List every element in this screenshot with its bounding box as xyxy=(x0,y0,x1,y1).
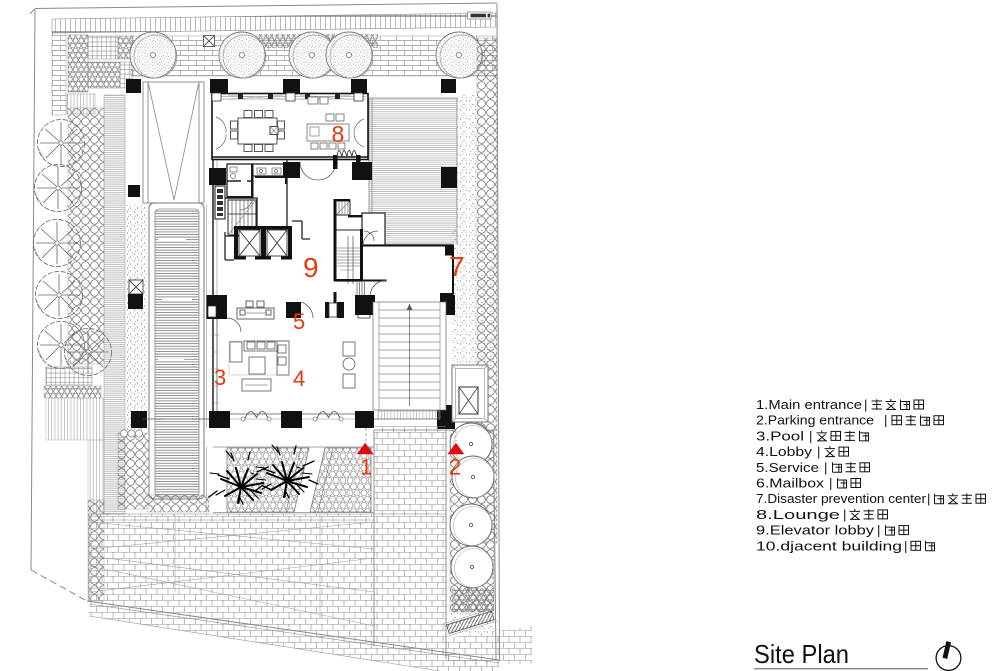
svg-text:8.Lounge: 8.Lounge xyxy=(756,507,840,522)
svg-text:2: 2 xyxy=(449,455,461,480)
svg-text:|: | xyxy=(904,538,907,553)
svg-text:1.Main entrance: 1.Main entrance xyxy=(756,397,862,412)
svg-text:4.Lobby: 4.Lobby xyxy=(756,444,812,459)
svg-text:10.djacent building: 10.djacent building xyxy=(756,538,902,553)
svg-text:|: | xyxy=(864,397,867,412)
svg-text:|: | xyxy=(877,523,880,538)
svg-text:3.Pool: 3.Pool xyxy=(756,428,804,443)
svg-text:|: | xyxy=(843,507,846,522)
svg-text:|: | xyxy=(927,491,930,506)
svg-text:|: | xyxy=(884,413,887,428)
svg-text:|: | xyxy=(829,476,832,491)
svg-text:3: 3 xyxy=(214,365,226,390)
svg-text:7.Disaster prevention center: 7.Disaster prevention center xyxy=(756,491,927,506)
svg-text:5.Service: 5.Service xyxy=(756,460,819,475)
svg-text:4: 4 xyxy=(293,366,305,391)
svg-text:1: 1 xyxy=(360,455,372,480)
svg-text:9: 9 xyxy=(303,252,319,283)
svg-text:|: | xyxy=(809,428,812,443)
svg-text:9.Elevator lobby: 9.Elevator lobby xyxy=(756,523,874,538)
svg-text:6.Mailbox: 6.Mailbox xyxy=(756,476,824,491)
svg-text:8: 8 xyxy=(332,121,345,147)
svg-text:2.Parking entrance: 2.Parking entrance xyxy=(756,413,874,428)
svg-text:7: 7 xyxy=(449,251,465,282)
svg-text:5: 5 xyxy=(293,309,305,334)
svg-text:Site Plan: Site Plan xyxy=(754,639,849,669)
svg-text:|: | xyxy=(817,444,820,459)
svg-text:|: | xyxy=(824,460,827,475)
